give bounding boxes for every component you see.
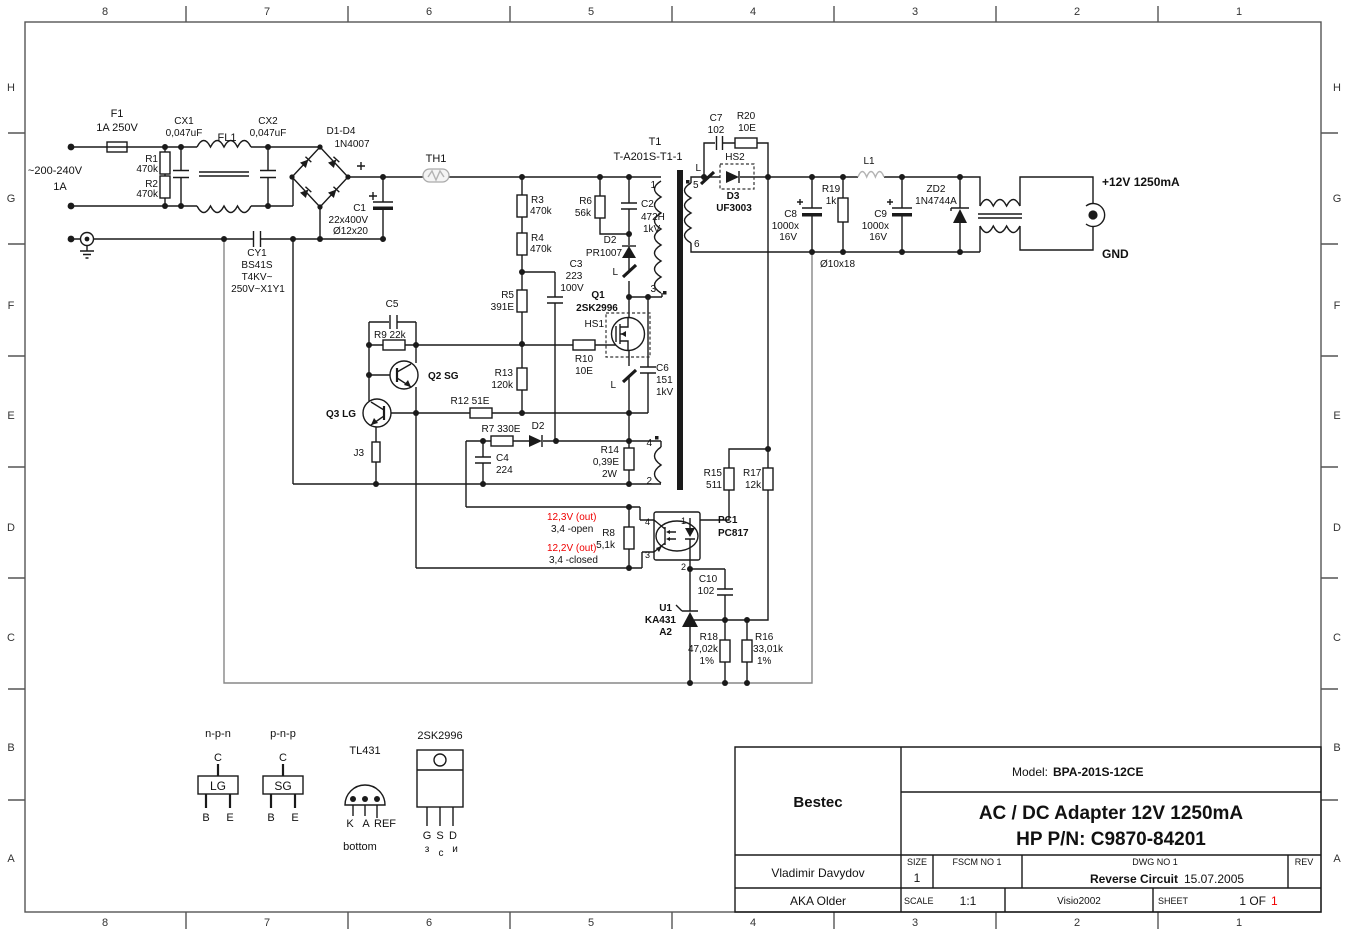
svg-text:102: 102 [698, 586, 715, 597]
svg-text:L: L [612, 267, 618, 278]
model-label: Model: [1012, 765, 1048, 779]
svg-text:CY1: CY1 [247, 248, 267, 259]
svg-text:C9: C9 [874, 209, 887, 220]
svg-text:5: 5 [693, 180, 699, 191]
snubber-c7-r20: C7102 R2010E [708, 111, 757, 150]
svg-text:2: 2 [1074, 6, 1080, 18]
svg-text:TL431: TL431 [349, 745, 380, 757]
svg-text:10E: 10E [738, 123, 756, 134]
svg-text:ZD2: ZD2 [927, 184, 946, 195]
resistor-r7: R7 330E [482, 424, 521, 446]
svg-text:0,39E: 0,39E [593, 457, 619, 468]
svg-text:L: L [695, 163, 701, 174]
svg-text:F1: F1 [111, 108, 124, 120]
resistor-r6: R656k [575, 196, 605, 219]
svg-text:LG: LG [210, 779, 226, 793]
svg-text:R8: R8 [602, 528, 615, 539]
svg-text:Q3 LG: Q3 LG [326, 409, 356, 420]
svg-text:8: 8 [102, 6, 108, 18]
svg-text:T-A201S-T1-1: T-A201S-T1-1 [613, 151, 682, 163]
svg-text:R7 330E: R7 330E [482, 424, 521, 435]
svg-text:FL1: FL1 [218, 132, 237, 144]
svg-text:T1: T1 [649, 136, 662, 148]
svg-text:2SK2996: 2SK2996 [576, 303, 618, 314]
svg-text:120k: 120k [491, 380, 514, 391]
svg-text:47,02k: 47,02k [688, 644, 719, 655]
svg-text:R19: R19 [822, 184, 841, 195]
svg-text:L1: L1 [863, 156, 875, 167]
earth-ground-icon [80, 246, 94, 259]
svg-text:R10: R10 [575, 354, 594, 365]
svg-text:8: 8 [102, 917, 108, 929]
svg-text:B: B [202, 812, 209, 824]
svg-text:4: 4 [645, 517, 650, 527]
cap-c8: C81000x16V [772, 199, 822, 243]
svg-text:1: 1 [1236, 917, 1242, 929]
svg-text:1000x: 1000x [862, 221, 889, 232]
svg-text:56k: 56k [575, 208, 592, 219]
svg-text:2: 2 [646, 476, 652, 487]
svg-text:C1: C1 [353, 203, 366, 214]
svg-text:D: D [7, 522, 15, 534]
cap-c10: C10102 [698, 574, 733, 597]
svg-text:REV: REV [1295, 857, 1314, 867]
sheet-value: 1 OF [1239, 894, 1266, 908]
wires [71, 143, 1093, 683]
svg-text:16V: 16V [779, 232, 797, 243]
sheet-total-red: 1 [1271, 894, 1278, 908]
size-value: 1 [914, 871, 921, 885]
svg-text:0,047uF: 0,047uF [250, 128, 287, 139]
svg-text:S: S [436, 830, 443, 842]
svg-text:n-p-n: n-p-n [205, 728, 231, 740]
svg-text:472H: 472H [641, 212, 665, 223]
transformer-core [677, 170, 683, 490]
svg-text:Ø12x20: Ø12x20 [333, 226, 368, 237]
cap-c5: C5 [386, 299, 399, 329]
svg-text:CX2: CX2 [258, 116, 278, 127]
svg-text:3: 3 [912, 6, 918, 18]
note-12v3: 12,3V (out) [547, 512, 596, 523]
svg-text:C5: C5 [386, 299, 399, 310]
svg-text:bottom: bottom [343, 841, 377, 853]
svg-text:R17: R17 [743, 468, 762, 479]
svg-text:470k: 470k [136, 164, 159, 175]
svg-text:R14: R14 [601, 445, 620, 456]
svg-text:D1-D4: D1-D4 [327, 126, 356, 137]
diode-d2b: D2 [529, 421, 545, 447]
svg-text:R12 51E: R12 51E [451, 396, 490, 407]
svg-text:C8: C8 [784, 209, 797, 220]
svg-text:PC817: PC817 [718, 528, 749, 539]
svg-text:6: 6 [426, 917, 432, 929]
svg-text:D2: D2 [604, 235, 617, 246]
svg-text:H: H [7, 82, 15, 94]
svg-text:KA431: KA431 [645, 615, 677, 626]
svg-text:p-n-p: p-n-p [270, 728, 296, 740]
svg-text:SHEET: SHEET [1158, 896, 1189, 906]
cap-c4: C4224 [475, 453, 513, 476]
output-choke [980, 200, 1020, 233]
doc-title: AC / DC Adapter 12V 1250mA [979, 803, 1244, 824]
svg-text:G: G [423, 830, 432, 842]
svg-text:5: 5 [588, 6, 594, 18]
svg-text:F: F [8, 300, 15, 312]
doc-part-number: HP P/N: C9870-84201 [1016, 829, 1206, 850]
svg-text:E: E [226, 812, 233, 824]
transistor-q3: Q3 LG [326, 399, 391, 427]
svg-text:FSCM NO 1: FSCM NO 1 [952, 857, 1001, 867]
svg-text:D3: D3 [727, 191, 740, 202]
title-block: Bestec Model: BPA-201S-12CE AC / DC Adap… [735, 747, 1321, 912]
resistor-r18-r16: R1847,02k1% R1633,01k1% [688, 632, 784, 667]
transformer-t1: T1 T-A201S-T1-1 1 3 5 6 4 2 L L L [610, 136, 714, 490]
svg-text:2: 2 [1074, 917, 1080, 929]
svg-text:C6: C6 [656, 363, 669, 374]
resistor-r8: R85,1k [596, 527, 634, 551]
primary-winding [655, 181, 662, 293]
svg-text:470k: 470k [530, 206, 553, 217]
svg-text:F: F [1334, 300, 1341, 312]
svg-text:SCALE: SCALE [904, 896, 934, 906]
legend-tl431: TL431 KAREF bottom [343, 745, 396, 853]
svg-text:1N4744A: 1N4744A [915, 196, 957, 207]
svg-text:3: 3 [912, 917, 918, 929]
svg-text:102: 102 [708, 125, 725, 136]
svg-text:UF3003: UF3003 [716, 203, 752, 214]
svg-text:CX1: CX1 [174, 116, 194, 127]
svg-text:7: 7 [264, 917, 270, 929]
svg-text:1000x: 1000x [772, 221, 799, 232]
svg-text:1A 250V: 1A 250V [96, 122, 138, 134]
svg-text:с: с [439, 848, 444, 859]
svg-text:5,1k: 5,1k [596, 540, 616, 551]
svg-text:E: E [291, 812, 298, 824]
output-gnd-label: GND [1102, 247, 1129, 261]
svg-text:REF: REF [374, 818, 396, 830]
svg-text:TH1: TH1 [426, 153, 447, 165]
svg-text:16V: 16V [869, 232, 887, 243]
svg-text:224: 224 [496, 465, 513, 476]
svg-text:470k: 470k [136, 189, 159, 200]
svg-text:22x400V: 22x400V [329, 215, 369, 226]
svg-text:D: D [449, 830, 457, 842]
svg-text:и: и [452, 844, 458, 855]
optocoupler-pc1: 4 3 1 2 PC1PC817 [645, 512, 749, 572]
legend-pnp: p-n-p C SG BE [263, 728, 303, 824]
svg-text:10E: 10E [575, 366, 593, 377]
svg-text:SIZE: SIZE [907, 857, 927, 867]
note-closed: 3,4 -closed [549, 555, 598, 566]
svg-text:3: 3 [650, 284, 656, 295]
output-voltage-label: +12V 1250mA [1102, 175, 1180, 189]
svg-text:BS41S: BS41S [241, 260, 272, 271]
schematic-canvas: 87654321 87654321 HGFEDCBA HGFEDCBA ~200… [0, 0, 1346, 935]
svg-text:C2: C2 [641, 199, 654, 210]
svg-text:C: C [279, 752, 287, 764]
svg-text:6: 6 [694, 239, 700, 250]
resistor-r12: R12 51E [451, 396, 492, 418]
author-alias: AKA Older [790, 894, 846, 908]
resistor-r9: R9 22k [374, 330, 407, 350]
svg-text:з: з [425, 844, 430, 855]
legend-2sk2996: 2SK2996 GSD зси [417, 730, 463, 859]
svg-text:2: 2 [681, 562, 686, 572]
svg-text:T4KV~: T4KV~ [242, 272, 273, 283]
svg-text:HS2: HS2 [725, 152, 745, 163]
voltage-notes: 12,3V (out) 3,4 -open 12,2V (out) 3,4 -c… [547, 512, 598, 566]
svg-text:A2: A2 [659, 627, 672, 638]
svg-text:G: G [7, 193, 16, 205]
svg-text:R6: R6 [579, 196, 592, 207]
svg-text:1kV: 1kV [643, 224, 661, 235]
cap-cy1: CY1BS41ST4KV~250V~X1Y1 [231, 231, 285, 295]
input-voltage-label: ~200-240V [28, 165, 83, 177]
svg-text:C: C [1333, 632, 1341, 644]
scale-value: 1:1 [960, 894, 977, 908]
c8-diameter-note: Ø10x18 [820, 259, 855, 270]
svg-text:151: 151 [656, 375, 673, 386]
svg-text:7: 7 [264, 6, 270, 18]
jumper-j3: J3 [353, 442, 380, 462]
bridge-rectifier-d1-d4: D1-D41N4007 [300, 126, 370, 198]
svg-text:R16: R16 [755, 632, 774, 643]
resistor-r19: R191k [822, 184, 848, 222]
svg-text:R3: R3 [531, 195, 544, 206]
note-12v2: 12,2V (out) [547, 543, 596, 554]
svg-text:SG: SG [274, 779, 291, 793]
svg-text:R13: R13 [495, 368, 514, 379]
svg-text:L: L [610, 380, 616, 391]
junction-dots [68, 144, 963, 686]
svg-text:5: 5 [588, 917, 594, 929]
svg-text:HS1: HS1 [585, 319, 605, 330]
aux-winding [655, 447, 662, 483]
svg-text:PR1007: PR1007 [586, 248, 623, 259]
svg-text:2W: 2W [602, 469, 618, 480]
model-value: BPA-201S-12CE [1053, 765, 1143, 779]
resistor-r14: R140,39E2W [593, 445, 634, 480]
svg-text:C7: C7 [710, 113, 723, 124]
inductor-l1: L1 [858, 156, 884, 177]
svg-text:100V: 100V [560, 283, 584, 294]
svg-text:1kV: 1kV [656, 387, 674, 398]
schematic-page: 87654321 87654321 HGFEDCBA HGFEDCBA ~200… [0, 0, 1346, 935]
transistor-q2: Q2 SG [390, 361, 459, 389]
software-name: Visio2002 [1057, 896, 1101, 907]
cap-c3: C3223100V [547, 259, 584, 303]
svg-text:C: C [7, 632, 15, 644]
svg-text:D2: D2 [532, 421, 545, 432]
svg-text:33,01k: 33,01k [753, 644, 784, 655]
svg-text:C3: C3 [570, 259, 583, 270]
zener-zd2: ZD21N4744A [915, 184, 969, 223]
author-name: Vladimir Davydov [771, 866, 864, 880]
dwg-name: Reverse Circuit [1090, 872, 1178, 886]
svg-text:1k: 1k [826, 196, 838, 207]
svg-text:C4: C4 [496, 453, 509, 464]
svg-text:4: 4 [750, 6, 756, 18]
svg-text:U1: U1 [659, 603, 672, 614]
svg-text:R4: R4 [531, 233, 544, 244]
output-connector: +12V 1250mA GND [1086, 175, 1180, 261]
resistor-r10: R1010E [573, 340, 595, 377]
svg-text:G: G [1333, 193, 1342, 205]
svg-text:12k: 12k [745, 480, 762, 491]
svg-text:4: 4 [646, 438, 652, 449]
cap-c6: C61511kV [640, 363, 674, 398]
thermistor-th1: TH1 [423, 153, 449, 182]
svg-text:C: C [214, 752, 222, 764]
mains-input: ~200-240V 1A [28, 165, 94, 258]
svg-text:470k: 470k [530, 244, 553, 255]
svg-text:R20: R20 [737, 111, 756, 122]
diode-d3: HS2 D3UF3003 [716, 152, 754, 214]
legend-npn: n-p-n C LG BE [198, 728, 238, 824]
company-name: Bestec [793, 794, 842, 811]
svg-text:J3: J3 [353, 448, 364, 459]
svg-text:R18: R18 [700, 632, 719, 643]
svg-text:1N4007: 1N4007 [334, 139, 369, 150]
svg-text:K: K [346, 818, 354, 830]
svg-text:1: 1 [681, 516, 686, 526]
svg-text:4: 4 [750, 917, 756, 929]
svg-text:A: A [362, 818, 370, 830]
secondary-winding [685, 183, 692, 243]
resistor-r1-r2: R1470k R2470k [136, 152, 170, 200]
cap-c2: C2472H1kV [621, 199, 665, 235]
svg-text:1: 1 [1236, 6, 1242, 18]
input-current-label: 1A [53, 181, 67, 193]
svg-text:E: E [7, 410, 14, 422]
svg-text:2SK2996: 2SK2996 [417, 730, 462, 742]
svg-text:6: 6 [426, 6, 432, 18]
dwg-date: 15.07.2005 [1184, 872, 1244, 886]
svg-text:PC1: PC1 [718, 515, 738, 526]
svg-text:A: A [1333, 853, 1341, 865]
svg-text:Q2 SG: Q2 SG [428, 371, 459, 382]
svg-text:223: 223 [566, 271, 583, 282]
svg-text:R5: R5 [501, 290, 514, 301]
svg-text:Q1: Q1 [591, 290, 605, 301]
svg-text:B: B [267, 812, 274, 824]
svg-text:DWG NO 1: DWG NO 1 [1132, 857, 1178, 867]
cap-c9: C91000x16V [862, 199, 912, 243]
svg-text:H: H [1333, 82, 1341, 94]
fuse-f1: F11A 250V [96, 108, 138, 152]
svg-text:1: 1 [650, 180, 656, 191]
svg-text:A: A [7, 853, 15, 865]
svg-text:D: D [1333, 522, 1341, 534]
svg-text:R15: R15 [704, 468, 723, 479]
svg-text:1%: 1% [700, 656, 715, 667]
note-open: 3,4 -open [551, 524, 593, 535]
resistor-r15-r17: R15511 R1712k [704, 468, 773, 491]
svg-text:0,047uF: 0,047uF [166, 128, 203, 139]
svg-text:250V~X1Y1: 250V~X1Y1 [231, 284, 285, 295]
svg-text:C10: C10 [699, 574, 718, 585]
svg-text:E: E [1333, 410, 1340, 422]
svg-text:511: 511 [706, 480, 722, 491]
svg-text:3: 3 [645, 550, 650, 560]
svg-text:R9 22k: R9 22k [374, 330, 407, 341]
svg-text:B: B [1333, 742, 1340, 754]
svg-text:1%: 1% [757, 656, 772, 667]
svg-text:B: B [7, 742, 14, 754]
svg-text:391E: 391E [491, 302, 515, 313]
